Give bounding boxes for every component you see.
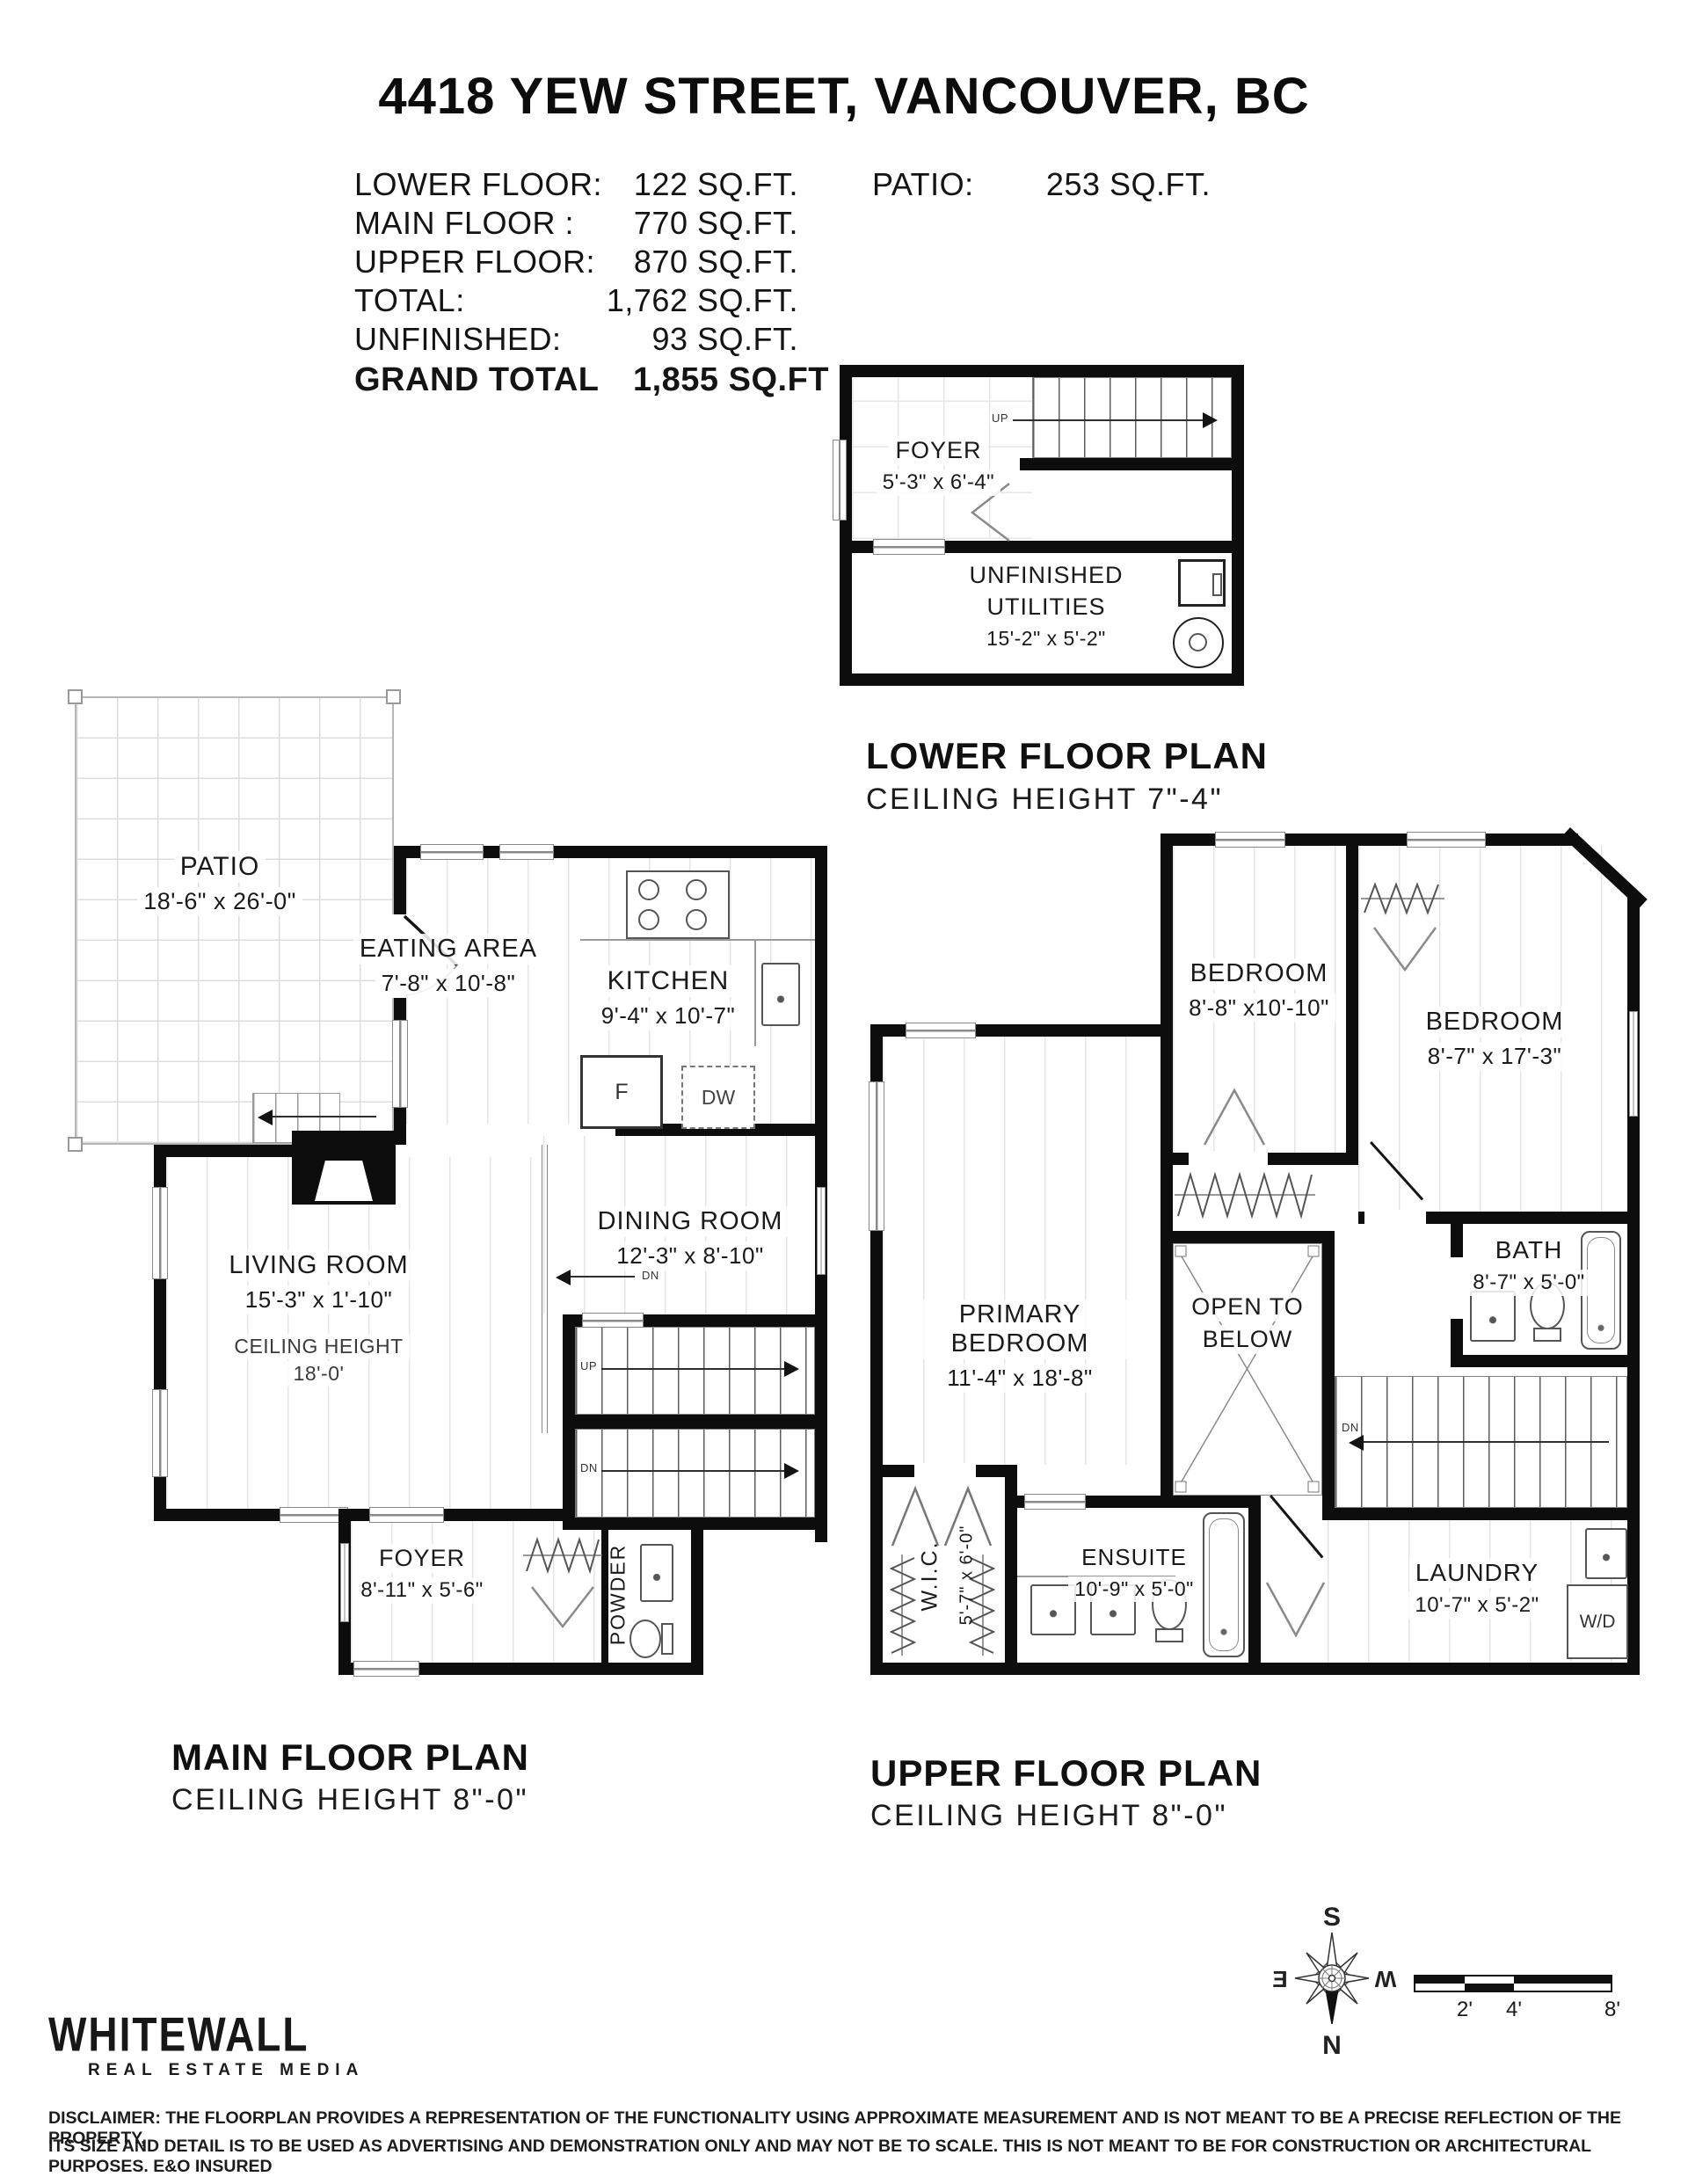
stat-row-patio: PATIO: 253 SQ.FT.	[872, 165, 1211, 204]
room-name: UNFINISHED	[963, 561, 1129, 590]
lower-foyer-window	[833, 440, 847, 521]
upper-stairs-dn-label: DN	[1340, 1421, 1361, 1434]
lower-stair-up-label: UP	[990, 411, 1010, 425]
bed1-closet-hangers-icon	[1175, 1168, 1315, 1222]
stairs-left-wall	[563, 1314, 575, 1530]
room-dims: 10'-7" x 5'-2"	[1408, 1592, 1545, 1619]
foyer-top-door	[369, 1507, 444, 1523]
stat-label: TOTAL:	[354, 281, 465, 320]
bath-bottom-wall	[1451, 1355, 1627, 1367]
stat-label: GRAND TOTAL	[354, 360, 600, 399]
upper-plan-title: UPPER FLOOR PLAN	[870, 1752, 1262, 1795]
burner-icon	[638, 909, 659, 930]
brand-tagline: REAL ESTATE MEDIA	[88, 2061, 364, 2080]
bath-toilet-tank	[1533, 1328, 1561, 1342]
upper-right-wall	[1627, 892, 1640, 1675]
wic-ensuite-wall	[1005, 1465, 1017, 1675]
bed1-door-swing-icon	[1197, 1086, 1272, 1149]
eating-window	[420, 844, 484, 860]
kitchen-counter-line	[580, 939, 815, 941]
patio-step-arrow	[266, 1116, 376, 1117]
fireplace-icon	[292, 1131, 396, 1205]
room-dims: 8'-7" x 17'-3"	[1422, 1042, 1568, 1071]
fridge-icon: F	[580, 1055, 663, 1129]
room-name: KITCHEN	[601, 965, 736, 997]
shaft-right-wall	[1322, 1231, 1335, 1508]
ceiling-height-value: 18'-0'	[287, 1361, 351, 1387]
ensuite-label: ENSUITE 10'-9" x 5'-0"	[1046, 1543, 1222, 1602]
patio-post	[68, 1137, 83, 1152]
main-foyer-label: FOYER 8'-11" x 5'-6"	[347, 1544, 497, 1604]
stat-row-upper: UPPER FLOOR: 870 SQ.FT.	[354, 243, 798, 281]
room-dims: 15'-3" x 1'-10"	[239, 1285, 398, 1314]
bath-label: BATH 8'-7" x 5'-0"	[1463, 1235, 1595, 1296]
primary-floor	[883, 1037, 1160, 1465]
stat-label: PATIO:	[872, 165, 974, 204]
patio-deck	[75, 696, 394, 1145]
scale-segment	[1415, 1977, 1465, 1984]
lower-divider-door	[873, 539, 945, 555]
kitchen-sink-icon	[761, 963, 800, 1026]
entry-door	[353, 1661, 419, 1677]
furnace-detail	[1212, 573, 1222, 596]
stairs-up-label: UP	[578, 1359, 599, 1372]
room-name: BEDROOM	[1184, 958, 1335, 989]
room-dims: 18'-6" x 26'-0"	[137, 887, 302, 916]
bed2-side-window	[1629, 1011, 1638, 1117]
room-dims: 10'-9" x 5'-0"	[1068, 1576, 1200, 1602]
stat-row-unfinished: UNFINISHED: 93 SQ.FT.	[354, 320, 798, 359]
lower-plan-subtitle: CEILING HEIGHT 7"-4"	[866, 783, 1223, 817]
primary-top-window	[906, 1023, 976, 1038]
burner-icon	[686, 909, 707, 930]
living-dn-arrow	[564, 1276, 635, 1278]
ensuite-door	[1024, 1494, 1086, 1510]
room-name: PRIMARY BEDROOM	[888, 1299, 1152, 1359]
bed2-window	[1407, 832, 1486, 848]
laundry-top-wall	[1322, 1508, 1640, 1520]
bed2-closet-swing-icon	[1370, 923, 1440, 974]
stat-value: 870 SQ.FT.	[634, 243, 798, 281]
dishwasher-icon: DW	[681, 1066, 755, 1129]
lower-utilities-label: UNFINISHED UTILITIES 15'-2" x 5'-2"	[923, 561, 1169, 652]
main-stairs-down	[575, 1429, 815, 1518]
stat-value: 122 SQ.FT.	[634, 165, 798, 204]
room-name: EATING AREA	[353, 934, 543, 965]
living-dining-rail	[542, 1145, 548, 1433]
laundry-label: LAUNDRY 10'-7" x 5'-2"	[1371, 1558, 1582, 1619]
lower-stair-arrow	[1013, 419, 1204, 421]
stairs-dn-arrow	[601, 1470, 786, 1472]
stairs-up-arrow	[601, 1368, 786, 1370]
wic-dims: 5'-7" x 6'-0"	[957, 1501, 978, 1650]
primary-window	[869, 1081, 884, 1231]
hall-door-swing-icon	[1262, 1578, 1328, 1640]
powder-toilet-tank	[661, 1623, 673, 1655]
patio-label: PATIO 18'-6" x 26'-0"	[114, 851, 325, 916]
wic-label: W.I.C.	[918, 1511, 943, 1642]
room-dims: 8'-7" x 5'-0"	[1466, 1270, 1590, 1296]
open-to-below-shaft	[1173, 1243, 1322, 1496]
laundry-sink-icon	[1585, 1528, 1627, 1579]
room-name: FOYER	[373, 1544, 471, 1573]
room-name: ENSUITE	[1075, 1543, 1193, 1572]
living-window	[152, 1389, 168, 1477]
stat-value: 1,762 SQ.FT.	[607, 281, 798, 320]
patio-step-arrowhead	[258, 1110, 273, 1125]
brand-logo: WHITEWALL	[48, 2006, 309, 2063]
closet-hangers-icon	[523, 1534, 602, 1576]
lower-foyer-label: FOYER 5'-3" x 6'-4"	[853, 436, 1024, 496]
wic-door-opening	[914, 1463, 976, 1479]
room-name: LIVING ROOM	[222, 1250, 414, 1281]
living-room-label: LIVING ROOM 15'-3" x 1'-10" CEILING HEIG…	[220, 1250, 418, 1387]
compass-w: W	[1375, 1966, 1397, 1992]
scale-tick: 8'	[1595, 1998, 1630, 2022]
patio-post	[68, 689, 83, 704]
room-dims: 15'-2" x 5'-2"	[980, 626, 1112, 652]
main-plan-title: MAIN FLOOR PLAN	[171, 1736, 529, 1779]
room-name: FOYER	[889, 436, 987, 465]
stairs-dn-arrowhead	[784, 1463, 799, 1479]
scale-tick: 2'	[1447, 1998, 1482, 2022]
scale-tick: 4'	[1496, 1998, 1532, 2022]
compass-n: N	[1322, 2031, 1342, 2057]
lower-plan-title: LOWER FLOOR PLAN	[866, 735, 1268, 777]
furnace-icon	[1178, 559, 1226, 607]
bedroom2-label: BEDROOM 8'-7" x 17'-3"	[1389, 1007, 1600, 1071]
open-to-below-label: OPEN TO BELOW	[1173, 1292, 1322, 1354]
powder-label: POWDER	[607, 1529, 630, 1661]
stairs-dn-label: DN	[578, 1461, 600, 1474]
floorplan-page: 4418 YEW STREET, VANCOUVER, BC LOWER FLO…	[0, 0, 1688, 2184]
stat-label: UNFINISHED:	[354, 320, 562, 359]
stat-label: MAIN FLOOR :	[354, 204, 574, 243]
living-dn-arrowhead	[556, 1270, 571, 1285]
patio-post	[386, 689, 401, 704]
wic-hangers-icon	[886, 1554, 918, 1656]
disclaimer-line2: ITS SIZE AND DETAIL IS TO BE USED AS ADV…	[48, 2137, 1657, 2177]
fridge-label: F	[615, 1080, 628, 1105]
stat-value: 253 SQ.FT.	[1046, 165, 1211, 204]
primary-middle-wall	[1160, 1037, 1173, 1508]
stat-row-lower: LOWER FLOOR: 122 SQ.FT.	[354, 165, 798, 204]
stat-value: 1,855 SQ.FT	[633, 360, 829, 399]
ensuite-toilet-tank	[1155, 1628, 1183, 1642]
stove-icon	[626, 870, 730, 939]
stairs-bottom-wall	[563, 1518, 827, 1530]
washer-dryer-label: W/D	[1580, 1612, 1616, 1633]
water-heater-icon	[1173, 617, 1224, 668]
kitchen-label: KITCHEN 9'-4" x 10'-7"	[571, 965, 765, 1030]
room-name: UTILITIES	[980, 593, 1111, 622]
closet-door-swing-icon	[527, 1583, 598, 1631]
stat-value: 93 SQ.FT.	[651, 320, 798, 359]
stat-row-grand-total: GRAND TOTAL 1,855 SQ.FT	[354, 360, 829, 399]
living-window	[152, 1187, 168, 1279]
living-top-wall	[154, 1145, 295, 1157]
bath-sink-icon	[1470, 1291, 1516, 1342]
scale-segment	[1514, 1977, 1611, 1984]
page-title: 4418 YEW STREET, VANCOUVER, BC	[0, 67, 1688, 126]
powder-right-wall	[691, 1530, 703, 1675]
primary-bedroom-label: PRIMARY BEDROOM 11'-4" x 18'-8"	[888, 1299, 1152, 1393]
open-line1: OPEN TO	[1185, 1292, 1310, 1321]
stat-label: LOWER FLOOR:	[354, 165, 602, 204]
room-dims: 9'-4" x 10'-7"	[595, 1001, 741, 1030]
dishwasher-label: DW	[702, 1086, 735, 1110]
lower-stair-arrowhead	[1203, 412, 1218, 428]
powder-toilet-icon	[629, 1620, 661, 1658]
scale-bar	[1414, 1975, 1612, 1992]
ceiling-height-note: CEILING HEIGHT	[228, 1334, 409, 1359]
stairs-mid-wall	[575, 1415, 815, 1429]
stairs-up-arrowhead	[784, 1361, 799, 1377]
compass-e: E	[1272, 1966, 1287, 1992]
eating-window	[499, 844, 554, 860]
upper-plan-subtitle: CEILING HEIGHT 8"-0"	[870, 1799, 1227, 1833]
water-heater-inner	[1189, 633, 1207, 652]
eating-side-window	[392, 1020, 408, 1108]
shaft-x-icon	[1174, 1244, 1321, 1494]
firebox	[315, 1161, 373, 1201]
powder-sink-icon	[640, 1544, 673, 1602]
room-name: DINING ROOM	[592, 1206, 789, 1237]
bedroom1-label: BEDROOM 8'-8" x10'-10"	[1158, 958, 1360, 1023]
upper-stairs-arrowhead	[1349, 1435, 1364, 1451]
living-dn-label: DN	[640, 1269, 661, 1282]
hall-door-leaf	[1270, 1495, 1323, 1558]
bed1-window	[1215, 832, 1285, 848]
room-dims: 5'-3" x 6'-4"	[877, 470, 1000, 496]
compass-rose-icon: S N E W	[1266, 1897, 1398, 2057]
main-stairs-up	[575, 1327, 815, 1415]
bed2-closet-hangers-icon	[1361, 879, 1444, 918]
room-dims: 7'-8" x 10'-8"	[375, 969, 521, 998]
room-dims: 8'-11" x 5'-6"	[354, 1577, 489, 1604]
scale-segment	[1465, 1984, 1514, 1991]
main-plan-subtitle: CEILING HEIGHT 8"-0"	[171, 1783, 528, 1817]
dining-window	[817, 1187, 826, 1275]
room-name: BEDROOM	[1420, 1007, 1570, 1037]
room-dims: 12'-3" x 8'-10"	[610, 1241, 769, 1270]
compass-s: S	[1323, 1903, 1341, 1932]
room-name: LAUNDRY	[1409, 1558, 1545, 1588]
upper-bottom-wall	[870, 1663, 1640, 1675]
bed2-door-opening	[1364, 1210, 1426, 1226]
lower-stair-wall	[1020, 458, 1232, 470]
bed1-door-opening	[1189, 1151, 1268, 1167]
ensuite-right-wall	[1248, 1496, 1261, 1675]
room-name: BATH	[1489, 1235, 1569, 1265]
stat-row-main: MAIN FLOOR : 770 SQ.FT.	[354, 204, 798, 243]
room-dims: 8'-8" x10'-10"	[1182, 994, 1335, 1023]
burner-icon	[686, 879, 707, 900]
room-name: PATIO	[174, 851, 266, 883]
burner-icon	[638, 879, 659, 900]
upper-stairs-arrow	[1361, 1441, 1609, 1443]
open-line2: BELOW	[1197, 1325, 1299, 1354]
eating-area-label: EATING AREA 7'-8" x 10'-8"	[352, 934, 545, 998]
shaft-top-wall	[1160, 1231, 1335, 1243]
stat-label: UPPER FLOOR:	[354, 243, 595, 281]
lower-staircase	[1032, 377, 1232, 458]
stat-value: 770 SQ.FT.	[634, 204, 798, 243]
stat-row-total: TOTAL: 1,762 SQ.FT.	[354, 281, 798, 320]
room-dims: 11'-4" x 18'-8"	[941, 1364, 1098, 1393]
dining-room-label: DINING ROOM 12'-3" x 8'-10"	[585, 1206, 796, 1270]
